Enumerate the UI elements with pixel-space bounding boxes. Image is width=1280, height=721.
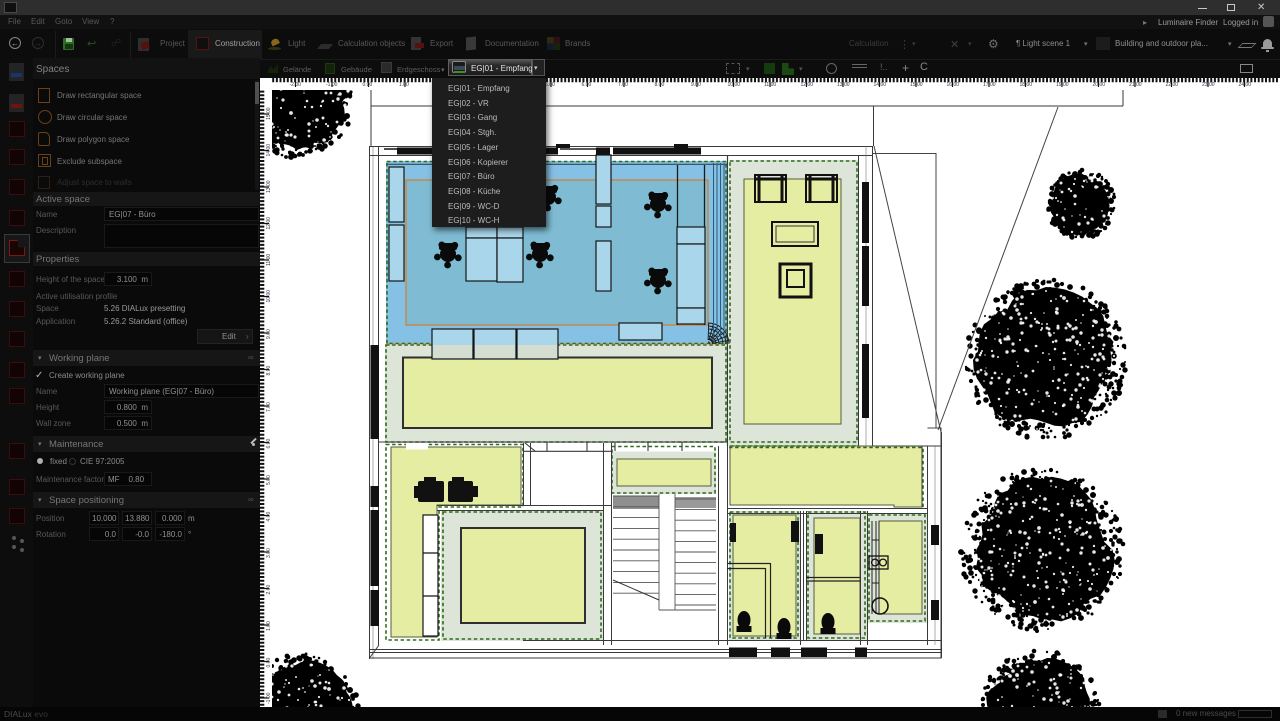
svg-text:1.00: 1.00	[399, 82, 409, 88]
svg-text:13.00: 13.00	[837, 82, 850, 88]
svg-text:15.00: 15.00	[266, 107, 272, 120]
svg-text:12.00: 12.00	[801, 82, 814, 88]
svg-text:16.00: 16.00	[947, 82, 960, 88]
svg-text:15.00: 15.00	[910, 82, 923, 88]
svg-text:5.00: 5.00	[266, 475, 272, 485]
svg-text:2.00: 2.00	[266, 585, 272, 595]
svg-text:17.00: 17.00	[983, 82, 996, 88]
svg-text:1.00: 1.00	[266, 621, 272, 631]
svg-text:6.00: 6.00	[266, 439, 272, 449]
svg-text:19.00: 19.00	[1056, 82, 1069, 88]
svg-text:18.00: 18.00	[1020, 82, 1033, 88]
svg-text:-1.00: -1.00	[326, 82, 338, 88]
svg-text:5.00: 5.00	[545, 82, 555, 88]
svg-text:14.00: 14.00	[874, 82, 887, 88]
svg-text:22.00: 22.00	[1166, 82, 1179, 88]
svg-text:12.00: 12.00	[266, 217, 272, 230]
svg-text:0.00: 0.00	[363, 82, 373, 88]
svg-text:21.00: 21.00	[1129, 82, 1142, 88]
svg-text:11.00: 11.00	[764, 82, 776, 88]
svg-text:24.00: 24.00	[1239, 82, 1252, 88]
svg-text:0.00: 0.00	[266, 658, 272, 668]
svg-text:8.00: 8.00	[266, 366, 272, 376]
svg-text:14.00: 14.00	[266, 144, 272, 157]
svg-text:23.00: 23.00	[1202, 82, 1215, 88]
svg-text:20.00: 20.00	[1093, 82, 1106, 88]
svg-text:-2.00: -2.00	[290, 82, 302, 88]
svg-text:4.00: 4.00	[266, 512, 272, 522]
svg-text:3.00: 3.00	[266, 548, 272, 558]
svg-text:11.00: 11.00	[266, 254, 272, 266]
svg-text:6.00: 6.00	[582, 82, 592, 88]
svg-text:7.00: 7.00	[618, 82, 628, 88]
svg-text:9.00: 9.00	[691, 82, 701, 88]
svg-text:9.00: 9.00	[266, 329, 272, 339]
svg-text:10.00: 10.00	[728, 82, 741, 88]
svg-text:10.00: 10.00	[266, 290, 272, 303]
svg-text:8.00: 8.00	[655, 82, 665, 88]
svg-text:13.00: 13.00	[266, 180, 272, 193]
svg-text:-1.00: -1.00	[266, 692, 272, 704]
svg-text:7.00: 7.00	[266, 402, 272, 412]
